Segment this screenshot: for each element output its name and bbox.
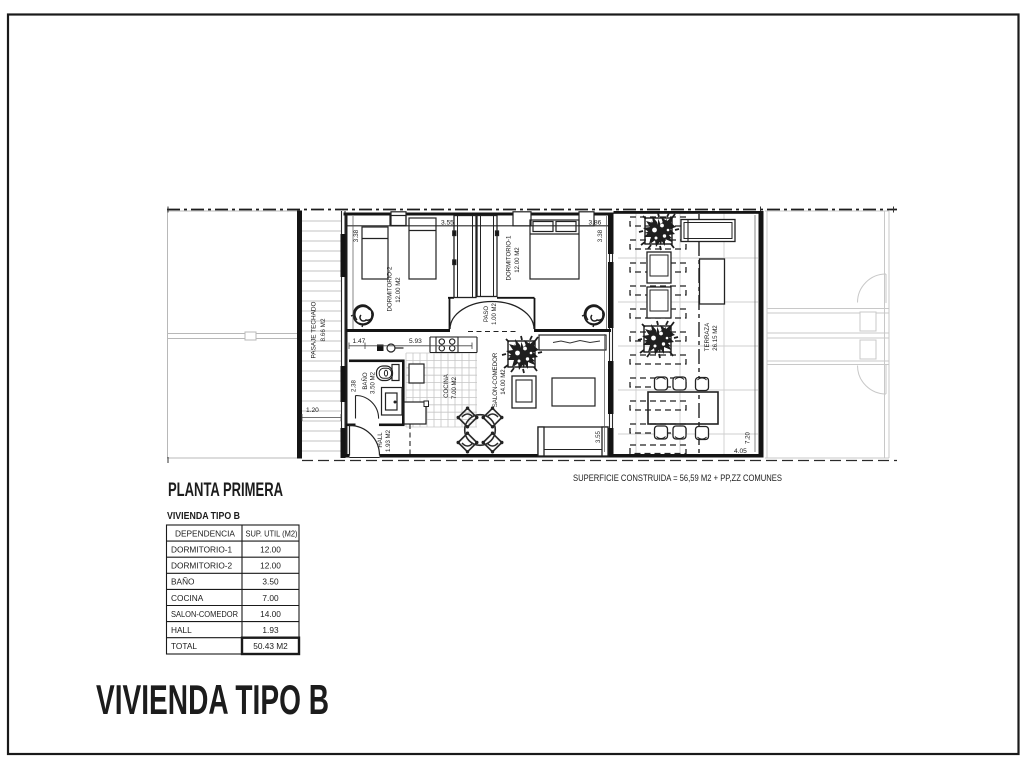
svg-text:2.38: 2.38 <box>351 379 358 391</box>
svg-text:BAÑO: BAÑO <box>171 577 195 587</box>
svg-text:7.20: 7.20 <box>745 431 752 443</box>
svg-text:1.20: 1.20 <box>306 407 319 414</box>
svg-text:1.93 M2: 1.93 M2 <box>385 429 392 452</box>
svg-text:TOTAL: TOTAL <box>171 641 197 651</box>
svg-text:3.38: 3.38 <box>597 229 604 242</box>
svg-text:DORMITORIO-1: DORMITORIO-1 <box>171 545 233 555</box>
svg-text:BAÑO: BAÑO <box>362 372 369 390</box>
svg-text:PASO: PASO <box>484 306 490 323</box>
svg-text:DORMITORIO-1: DORMITORIO-1 <box>506 235 513 281</box>
svg-text:26.15 M2: 26.15 M2 <box>712 325 719 351</box>
svg-text:COCINA: COCINA <box>443 373 450 398</box>
svg-text:7.00 M2: 7.00 M2 <box>451 376 458 399</box>
svg-text:DORMITORIO-2: DORMITORIO-2 <box>171 561 233 571</box>
svg-text:3.55: 3.55 <box>595 430 602 442</box>
svg-text:1.93: 1.93 <box>262 625 279 635</box>
svg-text:8.66 M2: 8.66 M2 <box>320 318 327 342</box>
svg-text:SUP. UTIL (M2): SUP. UTIL (M2) <box>246 529 298 539</box>
svg-text:3.86: 3.86 <box>589 220 602 227</box>
svg-text:3.50: 3.50 <box>262 577 279 587</box>
svg-text:SALON-COMEDOR: SALON-COMEDOR <box>171 609 238 619</box>
svg-text:PLANTA PRIMERA: PLANTA PRIMERA <box>168 479 283 501</box>
svg-text:3.38: 3.38 <box>353 229 360 242</box>
svg-text:1.47: 1.47 <box>353 338 366 345</box>
svg-text:TERRAZA: TERRAZA <box>704 322 711 351</box>
svg-text:VIVIENDA TIPO B: VIVIENDA TIPO B <box>96 676 329 723</box>
svg-text:SUPERFICIE CONSTRUIDA = 56,59: SUPERFICIE CONSTRUIDA = 56,59 M2 + PP,ZZ… <box>573 473 782 484</box>
svg-text:3.50 M2: 3.50 M2 <box>370 371 377 394</box>
svg-text:12.00: 12.00 <box>260 545 281 555</box>
svg-text:5.93: 5.93 <box>409 338 422 345</box>
svg-text:SALON-COMEDOR: SALON-COMEDOR <box>492 352 499 407</box>
svg-text:12.00 M2: 12.00 M2 <box>395 277 402 303</box>
svg-text:DORMITORIO-2: DORMITORIO-2 <box>387 266 394 312</box>
svg-text:12.00: 12.00 <box>260 561 281 571</box>
svg-text:COCINA: COCINA <box>171 593 204 603</box>
svg-text:14.00: 14.00 <box>260 609 281 619</box>
svg-text:1.00 M2: 1.00 M2 <box>492 303 498 325</box>
svg-text:7.00: 7.00 <box>262 593 279 603</box>
svg-text:PASAJE TECHADO: PASAJE TECHADO <box>311 302 318 359</box>
svg-text:14.00 M2: 14.00 M2 <box>500 369 507 395</box>
svg-text:HALL: HALL <box>171 625 192 635</box>
svg-text:12.00 M2: 12.00 M2 <box>514 247 521 273</box>
svg-text:4.05: 4.05 <box>734 448 747 455</box>
svg-text:3.55: 3.55 <box>441 220 454 227</box>
svg-text:VIVIENDA TIPO B: VIVIENDA TIPO B <box>167 510 240 522</box>
svg-text:DEPENDENCIA: DEPENDENCIA <box>175 529 235 539</box>
svg-text:50.43 M2: 50.43 M2 <box>253 641 288 651</box>
